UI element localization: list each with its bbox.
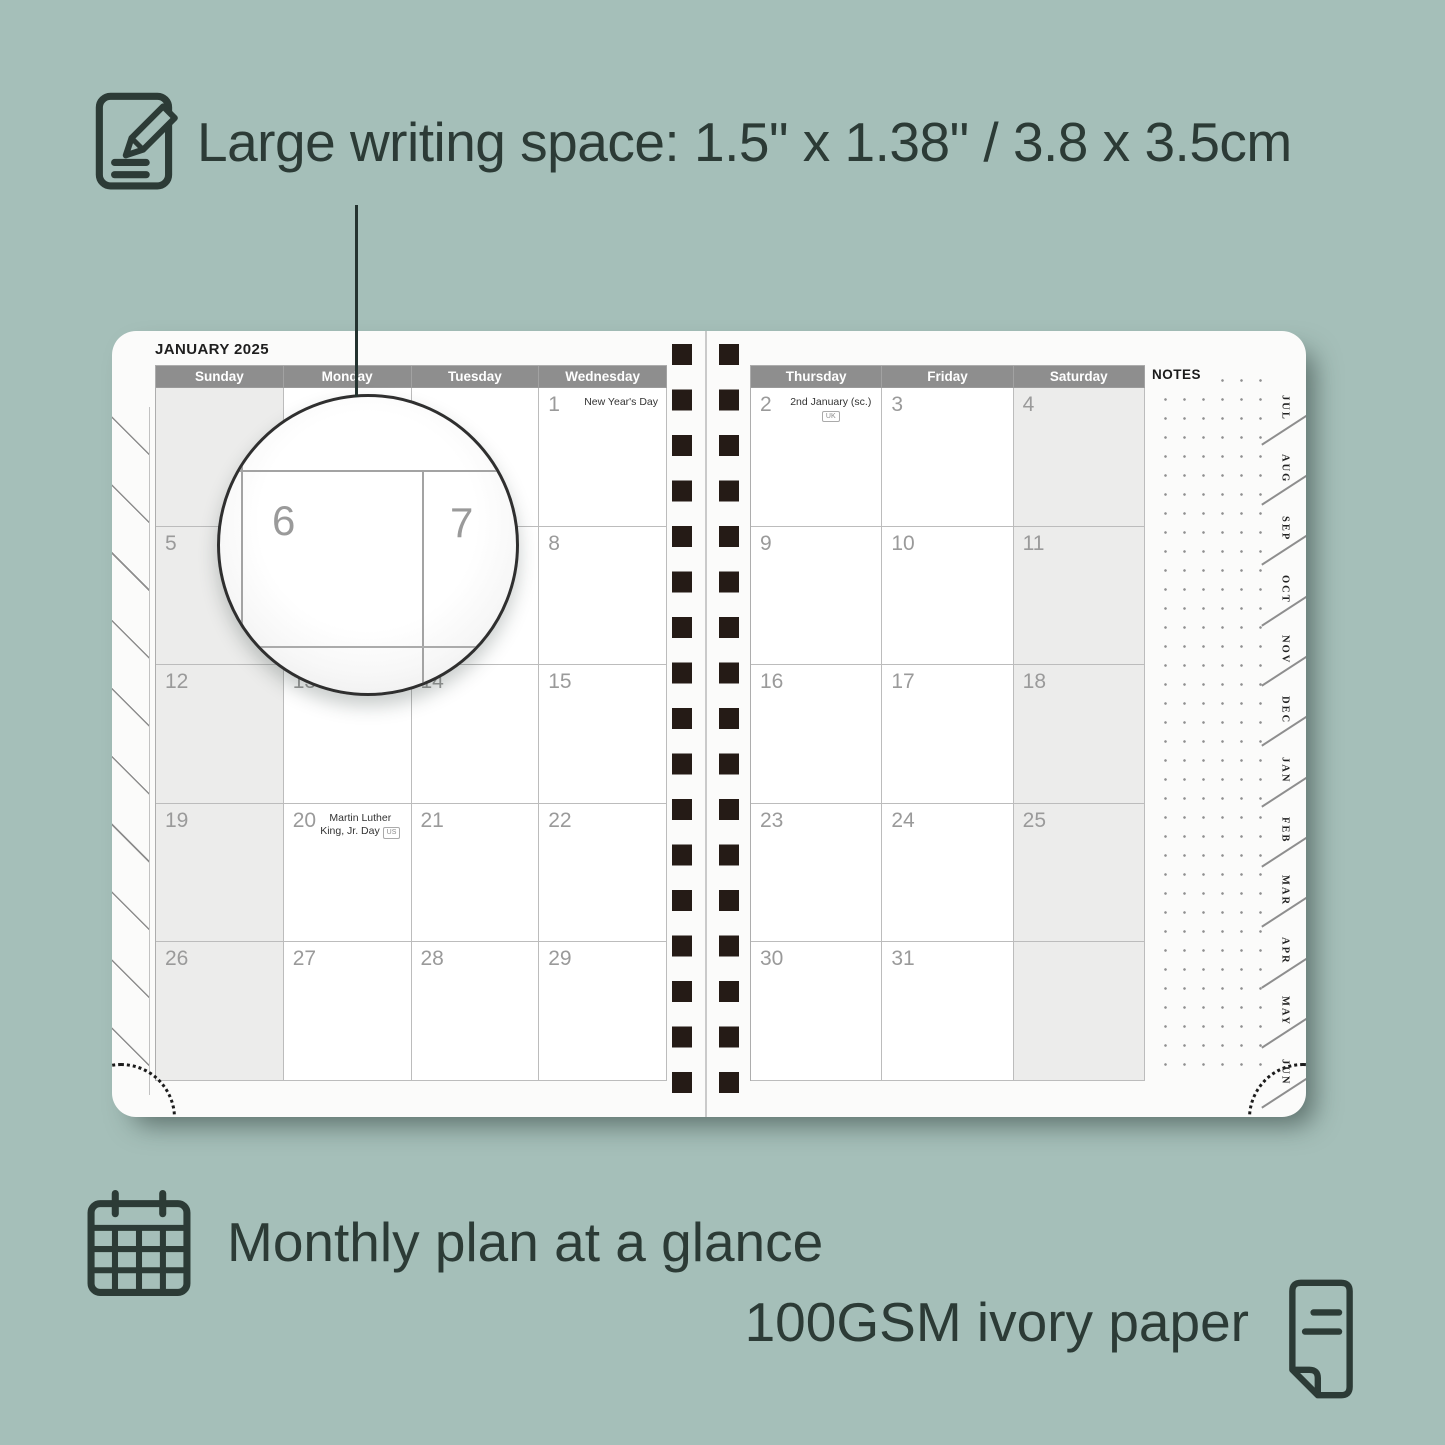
calendar-cell: 10 bbox=[882, 527, 1013, 666]
calendar-cell: 30 bbox=[751, 942, 882, 1081]
country-badge: UK bbox=[822, 411, 840, 423]
month-tab-nov: NOV bbox=[1264, 619, 1306, 679]
pencil-note-icon bbox=[90, 80, 182, 192]
month-tab-rail: JUL AUG SEP OCT NOV DEC JAN FEB MAR APR … bbox=[1264, 378, 1306, 1102]
feature-paper-text: 100GSM ivory paper bbox=[745, 1290, 1249, 1354]
notes-label: NOTES bbox=[1150, 365, 1207, 384]
day-number: 29 bbox=[548, 948, 571, 969]
day-number: 27 bbox=[293, 948, 316, 969]
calendar-cell: 23 bbox=[751, 804, 882, 943]
day-header: Saturday bbox=[1014, 366, 1145, 388]
calendar-cell: 20 Martin Luther King, Jr. Day US bbox=[284, 804, 412, 943]
month-tab-feb: FEB bbox=[1264, 800, 1306, 860]
day-number: 9 bbox=[760, 533, 772, 554]
calendar-cell: 16 bbox=[751, 665, 882, 804]
calendar-cell: 21 bbox=[412, 804, 540, 943]
day-number: 10 bbox=[891, 533, 914, 554]
day-number: 15 bbox=[548, 671, 571, 692]
calendar-cell: 24 bbox=[882, 804, 1013, 943]
month-tab-jan: JAN bbox=[1264, 740, 1306, 800]
month-tab-jun: JUN bbox=[1264, 1042, 1306, 1102]
month-tab-may: MAY bbox=[1264, 981, 1306, 1041]
spiral-binding-left-holes bbox=[672, 344, 692, 1106]
day-header: Wednesday bbox=[539, 366, 667, 388]
calendar-cell: 27 bbox=[284, 942, 412, 1081]
month-tab-sep: SEP bbox=[1264, 499, 1306, 559]
calendar-grid-icon bbox=[85, 1188, 193, 1300]
day-number: 17 bbox=[891, 671, 914, 692]
month-tab-mar: MAR bbox=[1264, 861, 1306, 921]
calendar-cell: 28 bbox=[412, 942, 540, 1081]
spiral-binding-right-holes bbox=[719, 344, 739, 1106]
paper-sheet-icon bbox=[1286, 1276, 1356, 1402]
holiday-label: Martin Luther King, Jr. Day US bbox=[316, 812, 404, 839]
day-number: 30 bbox=[760, 948, 783, 969]
day-number: 24 bbox=[891, 810, 914, 831]
day-number: 2 bbox=[760, 394, 772, 415]
day-number: 19 bbox=[165, 810, 188, 831]
product-image: Large writing space: 1.5" x 1.38" / 3.8 … bbox=[0, 0, 1445, 1445]
calendar-cell: 26 bbox=[156, 942, 284, 1081]
left-page-tab-edge bbox=[112, 407, 150, 1095]
day-number: 4 bbox=[1023, 394, 1035, 415]
page-seam bbox=[705, 331, 707, 1117]
magnified-grid-line bbox=[241, 397, 243, 693]
calendar-cell: 29 bbox=[539, 942, 667, 1081]
day-number: 8 bbox=[548, 533, 560, 554]
magnified-grid-line bbox=[422, 470, 424, 693]
holiday-label: 2nd January (sc.)UK bbox=[790, 396, 871, 422]
calendar-cell bbox=[1014, 942, 1145, 1081]
magnifier-circle: 6 7 bbox=[217, 394, 519, 696]
month-tab-dec: DEC bbox=[1264, 680, 1306, 740]
month-tab-aug: AUG bbox=[1264, 438, 1306, 498]
calendar-cell: 31 bbox=[882, 942, 1013, 1081]
day-number: 1 bbox=[548, 394, 560, 415]
day-header: Thursday bbox=[751, 366, 882, 388]
day-header: Monday bbox=[284, 366, 412, 388]
day-number: 26 bbox=[165, 948, 188, 969]
day-header: Tuesday bbox=[412, 366, 540, 388]
calendar-cell: 4 bbox=[1014, 388, 1145, 527]
calendar-cell: 18 bbox=[1014, 665, 1145, 804]
callout-pointer-line bbox=[355, 205, 358, 397]
day-header: Friday bbox=[882, 366, 1013, 388]
feature-monthly-text: Monthly plan at a glance bbox=[227, 1210, 823, 1274]
magnified-grid-line bbox=[220, 470, 516, 472]
day-number: 5 bbox=[165, 533, 177, 554]
headline-text: Large writing space: 1.5" x 1.38" / 3.8 … bbox=[197, 110, 1292, 174]
calendar-cell: 19 bbox=[156, 804, 284, 943]
calendar-cell: 2 2nd January (sc.)UK bbox=[751, 388, 882, 527]
calendar-cell: 12 bbox=[156, 665, 284, 804]
month-tab-oct: OCT bbox=[1264, 559, 1306, 619]
calendar-cell: 15 bbox=[539, 665, 667, 804]
day-number: 21 bbox=[421, 810, 444, 831]
calendar-cell: 11 bbox=[1014, 527, 1145, 666]
day-number: 11 bbox=[1023, 533, 1045, 554]
magnified-day-number: 6 bbox=[272, 497, 295, 545]
calendar-cell: 17 bbox=[882, 665, 1013, 804]
day-number: 12 bbox=[165, 671, 188, 692]
day-number: 16 bbox=[760, 671, 783, 692]
country-badge: US bbox=[383, 827, 401, 839]
day-number: 3 bbox=[891, 394, 903, 415]
day-header: Sunday bbox=[156, 366, 284, 388]
day-number: 31 bbox=[891, 948, 914, 969]
calendar-right-page: Thursday Friday Saturday 2 2nd January (… bbox=[750, 365, 1145, 1081]
calendar-cell: 9 bbox=[751, 527, 882, 666]
day-number: 25 bbox=[1023, 810, 1046, 831]
holiday-label: New Year's Day bbox=[584, 396, 658, 410]
day-number: 18 bbox=[1023, 671, 1046, 692]
month-title: JANUARY 2025 bbox=[155, 341, 269, 358]
calendar-cell: 22 bbox=[539, 804, 667, 943]
calendar-cell: 8 bbox=[539, 527, 667, 666]
magnified-day-number: 7 bbox=[450, 499, 473, 547]
month-tab-jul: JUL bbox=[1264, 378, 1306, 438]
calendar-cell: 1 New Year's Day bbox=[539, 388, 667, 527]
calendar-cell: 3 bbox=[882, 388, 1013, 527]
day-number: 28 bbox=[421, 948, 444, 969]
day-number: 20 bbox=[293, 810, 316, 831]
calendar-cell: 25 bbox=[1014, 804, 1145, 943]
day-number: 23 bbox=[760, 810, 783, 831]
magnified-grid-line bbox=[220, 646, 516, 648]
month-tab-apr: APR bbox=[1264, 921, 1306, 981]
day-number: 22 bbox=[548, 810, 571, 831]
notes-dot-grid bbox=[1148, 367, 1264, 1079]
calendar-cell: 14 bbox=[412, 665, 540, 804]
